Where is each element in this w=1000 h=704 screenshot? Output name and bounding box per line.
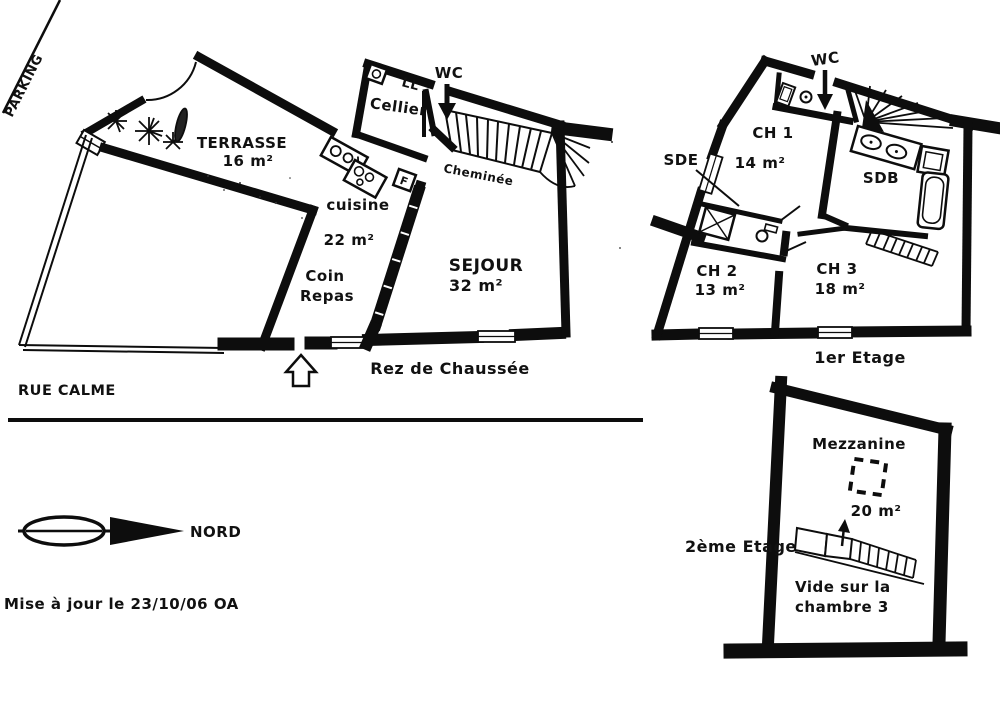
gf-floor-label: Rez de Chaussée: [370, 359, 530, 378]
void-label-line2: chambre 3: [795, 598, 889, 616]
street-label: RUE CALME: [18, 383, 116, 399]
double-sink-icon: [851, 126, 922, 169]
f2-east-wall: [939, 429, 945, 643]
corridor-wall: [822, 215, 845, 225]
ground-floor-plan: PARKING: [2, 0, 621, 399]
down-arrow-icon: [817, 70, 833, 110]
f1-east-stub-wall: [956, 121, 998, 128]
kitchen-label: cuisine: [326, 196, 389, 214]
ch3-area: 18 m²: [815, 280, 866, 298]
ch2-area: 13 m²: [695, 281, 746, 299]
ch1-area: 14 m²: [735, 154, 786, 172]
terrace-north-wall: [199, 57, 332, 131]
north-label: NORD: [190, 523, 241, 541]
cellier-label: Cellier: [369, 94, 429, 120]
gf-north-wall2: [452, 92, 560, 125]
terrace-label: TERRASSE: [197, 134, 287, 152]
f2-staircase: [795, 528, 924, 584]
void-label-line1: Vide sur la: [795, 578, 891, 596]
first-floor-plan: WC: [657, 48, 998, 367]
gf-wc-label: WC: [435, 64, 464, 82]
f1-floor-label: 1er Etage: [814, 348, 906, 367]
fridge-icon: F: [393, 169, 416, 191]
gf-staircase: Cheminée: [442, 110, 590, 188]
gf-stairs-note: Cheminée: [442, 161, 514, 188]
f2-west-wall: [768, 382, 781, 644]
kitchen-area: 22 m²: [324, 231, 375, 249]
f1-north-wall: [765, 61, 810, 74]
toilet-icon: [757, 224, 778, 242]
terrace-area: 16 m²: [223, 152, 274, 170]
f2-base-wall: [731, 649, 960, 651]
second-floor-plan: Mezzanine 20 m² Vide sur la chambre 3 2è…: [685, 382, 960, 651]
sde-label: SDE: [663, 151, 698, 169]
skylight-icon: [850, 459, 886, 495]
toilet-icon: [801, 92, 812, 103]
dining-label-line1: Coin: [305, 267, 344, 285]
f1-east-wall: [966, 126, 968, 331]
f1-south-wall: [657, 327, 966, 339]
window: [699, 154, 723, 194]
living-area: 32 m²: [449, 276, 503, 295]
f2-north-wall: [776, 388, 947, 430]
terrace-west-wall: [86, 101, 141, 133]
terrace-door-arc: [146, 62, 196, 100]
gf-east-stub-wall: [558, 128, 606, 134]
f2-floor-label: 2ème Etage: [685, 537, 797, 556]
ch1-label: CH 1: [752, 124, 793, 142]
sdb-label: SDB: [863, 169, 899, 187]
floor-plan-document: PARKING: [0, 0, 1000, 704]
floor-plan-drawing: PARKING: [0, 0, 1000, 704]
washer-label: LL: [400, 75, 421, 94]
parking-label: PARKING: [2, 52, 46, 120]
f1-wc-label: WC: [810, 48, 841, 70]
f1-staircase-up: [854, 86, 953, 132]
dining-label-line2: Repas: [300, 287, 354, 305]
terrace-south-wall: [104, 148, 313, 210]
ch2-label: CH 2: [696, 262, 737, 280]
shower-icon: [917, 146, 948, 176]
mezzanine-label: Mezzanine: [812, 435, 906, 453]
door-leaf: [780, 206, 800, 221]
cellier-south-wall: [356, 134, 424, 158]
living-label: SEJOUR: [449, 256, 524, 276]
ch1-corridor-wall: [822, 115, 837, 215]
revision-note: Mise à jour le 23/10/06 OA: [4, 595, 239, 613]
yard-fence: [19, 135, 224, 353]
ch3-label: CH 3: [816, 260, 857, 278]
north-compass-icon: [18, 517, 184, 545]
entrance-arrow-icon: [286, 355, 316, 386]
bathtub-icon: [917, 172, 949, 229]
gf-south-wall: [224, 331, 560, 348]
mezzanine-area: 20 m²: [851, 502, 902, 520]
